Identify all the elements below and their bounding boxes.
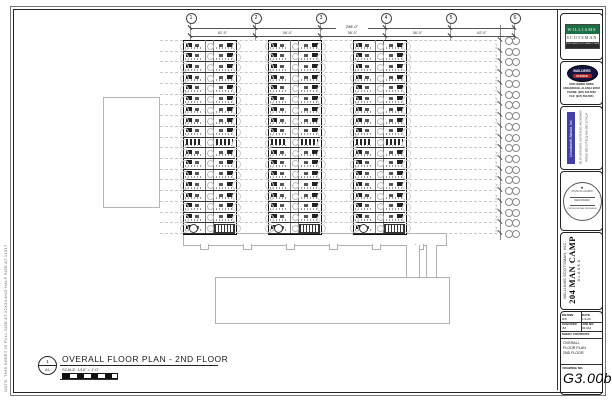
pe-seal-line-1 [570,197,595,198]
door-arc [232,171,241,180]
door-arc [207,118,214,125]
door-arc [180,117,189,126]
room-right [214,84,234,92]
room-right [214,213,234,221]
door-arc [377,171,384,178]
door-arc [402,149,411,158]
door-arc [292,150,299,157]
room-right [214,117,234,125]
corridor-column-pocket [329,244,338,250]
door-arc [317,149,326,158]
door-arc [232,181,241,190]
door-arc [402,74,411,83]
room-right [299,202,319,210]
laundry-equipment [356,139,372,145]
detail-callout: 1 A1 [38,356,57,375]
door-arc [317,160,326,169]
door-arc [207,139,214,146]
room-right [214,63,234,71]
door-arc [402,214,411,223]
door-arc [317,192,326,201]
contents-line-2: FLOOR PLAN [563,346,586,351]
room-right [214,192,234,200]
door-arc [180,53,189,62]
laundry-equipment [386,139,402,145]
stair [214,224,235,233]
room-right [214,42,234,50]
laundry-equipment [271,139,287,145]
door-arc [207,53,214,60]
door-arc [265,106,274,115]
side-grid-bubble [512,187,520,195]
project-company: WILLIAMS SCOTSMAN, INC. [562,234,567,306]
logo-box-builders-choice: BUILDERS CHOICE 5400 HOMER DRIVE ANCHORA… [560,61,603,105]
top-grid-bubble: 3 [316,13,327,24]
room-right [299,52,319,60]
door-arc [292,53,299,60]
room-right [384,74,404,82]
side-grid-bubble [512,230,520,238]
room-right [214,127,234,135]
link-corridor-outline [406,245,420,277]
door-arc [350,96,359,105]
bay-dim-label: 58'-0" [407,31,429,35]
door-arc [207,182,214,189]
door-arc [377,203,384,210]
room-right [214,181,234,189]
room-right [384,52,404,60]
door-arc [292,203,299,210]
door-arc [180,160,189,169]
room-right [384,117,404,125]
door-arc [207,107,214,114]
corridor-column-pocket [372,244,381,250]
room-right [299,159,319,167]
corridor-column-pocket [243,244,252,250]
door-arc [317,117,326,126]
room-right [299,74,319,82]
room-right [299,42,319,50]
door-arc [350,85,359,94]
door-arc [317,42,326,51]
ws-logo-tagline-bar: A WILLIAMS SCOTSMAN COMPANY [566,42,599,48]
side-grid-bubble [512,48,520,56]
door-arc [350,117,359,126]
builders-choice-sub: CHOICE [573,74,592,78]
room-right [384,127,404,135]
side-dim-label: 11'-4" [496,51,499,61]
door-arc [377,225,384,232]
side-dim-label: 11'-4" [496,126,499,136]
door-arc [265,128,274,137]
door-arc [265,224,274,233]
door-arc [317,139,326,148]
floor-plan: 11'-4"11'-4"11'-4"11'-4"11'-4"11'-4"11'-… [0,0,557,401]
room-divider [353,233,405,234]
door-arc [317,181,326,190]
side-dim-label: 11'-4" [496,190,499,200]
top-grid-bubble: 1 [186,13,197,24]
door-arc [292,85,299,92]
door-arc [180,42,189,51]
side-grid-bubble [512,58,520,66]
door-arc [207,193,214,200]
side-dim-label: 11'-4" [496,147,499,157]
top-grid-bubble: 5 [446,13,457,24]
door-arc [402,42,411,51]
door-arc [377,85,384,92]
side-dim-label: 11'-4" [496,40,499,50]
door-arc [377,53,384,60]
door-arc [232,63,241,72]
door-arc [402,192,411,201]
stair [384,224,405,233]
builders-choice-logo: BUILDERS CHOICE [567,65,598,82]
date-value: 1-9-06 [582,317,591,321]
door-arc [402,203,411,212]
room-right [214,159,234,167]
door-arc [350,128,359,137]
plan-scale-note: SCALE: 1/16" = 1'-0" [62,367,99,372]
bay-dim-label: 62'-0" [471,31,493,35]
door-arc [180,192,189,201]
side-dim-label: 11'-4" [496,72,499,82]
door-arc [377,96,384,103]
door-arc [350,106,359,115]
room-right [214,149,234,157]
door-arc [402,117,411,126]
project-location: ALASKA [577,234,581,306]
ws-logo-name-bar: SCOTSMAN [566,34,599,42]
titleblock-divider [557,10,558,390]
side-grid-bubble [512,69,520,77]
door-arc [317,203,326,212]
door-arc [232,42,241,51]
side-grid-bubble [512,209,520,217]
side-grid-bubble [512,219,520,227]
builders-choice-address-4: FAX: (907) 563-5051 [561,95,602,98]
room-right [214,202,234,210]
door-arc [402,106,411,115]
door-arc [232,74,241,83]
door-arc [265,85,274,94]
door-arc [377,182,384,189]
pe-seal-mid-text: REGISTERED [564,199,601,202]
door-arc [377,43,384,50]
door-arc [402,63,411,72]
door-arc [265,171,274,180]
drawing-no-value: G3.00b [563,370,612,386]
room-right [214,74,234,82]
door-arc [402,171,411,180]
door-arc [207,85,214,92]
door-arc [207,96,214,103]
room-right [384,202,404,210]
door-arc [180,214,189,223]
side-grid-bubble [512,101,520,109]
side-grid-bubble [512,123,520,131]
bay-dim-label: 58'-0" [342,31,364,35]
door-arc [377,214,384,221]
side-grid-bubble [512,198,520,206]
door-arc [207,160,214,167]
door-arc [350,160,359,169]
door-arc [317,128,326,137]
door-arc [317,106,326,115]
room-right [384,84,404,92]
pe-seal-line-2 [570,205,595,206]
door-arc [292,64,299,71]
room-right [384,213,404,221]
door-arc [265,53,274,62]
plan-title-underline [60,365,218,366]
door-arc [292,107,299,114]
door-arc [207,171,214,178]
room-right [299,127,319,135]
door-arc [232,214,241,223]
door-arc [180,149,189,158]
door-arc [350,42,359,51]
door-arc [232,128,241,137]
drawn-value: DW [562,317,567,321]
sheet-contents-text: OVERALL FLOOR PLAN 2ND FLOOR [563,341,586,355]
room-divider [183,233,235,234]
callout-divider [39,365,56,366]
door-arc [232,96,241,105]
project-name: 204 MAN CAMP [567,234,577,306]
door-arc [350,181,359,190]
door-arc [265,42,274,51]
room-right [214,52,234,60]
door-arc [232,139,241,148]
door-arc [377,139,384,146]
side-dim-label: 11'-4" [496,169,499,179]
door-arc [377,75,384,82]
side-dim-label: 11'-4" [496,115,499,125]
side-dim-label: 11'-4" [496,179,499,189]
bay-dim-label: 58'-0" [277,31,299,35]
woodworth-address-1: 301 W. NORTHERN LIGHTS BLVD. ANCHORAGE, … [579,111,584,165]
room-right [384,42,404,50]
door-arc [377,160,384,167]
adjacent-building-outline [103,97,160,208]
stair [299,224,320,233]
sheet-contents-label: SHEET CONTENTS [561,332,602,339]
top-grid-bubble: 4 [381,13,392,24]
door-arc [232,53,241,62]
door-arc [265,117,274,126]
room-right [299,84,319,92]
stamp-box: ★ STATE OF ALASKA REGISTERED PROFESSIONA… [560,171,603,231]
door-arc [350,149,359,158]
side-grid-bubble [512,112,520,120]
door-arc [350,53,359,62]
room-right [214,95,234,103]
door-arc [265,181,274,190]
door-arc [265,203,274,212]
laundry-equipment [216,139,232,145]
door-arc [180,106,189,115]
side-grid-bubble [512,155,520,163]
door-arc [265,149,274,158]
door-arc [402,139,411,148]
door-arc [350,171,359,180]
door-arc [317,85,326,94]
pe-seal: ★ STATE OF ALASKA REGISTERED PROFESSIONA… [563,182,602,221]
room-right [299,192,319,200]
door-arc [232,203,241,212]
door-arc [350,224,359,233]
door-arc [292,225,299,232]
door-arc [207,150,214,157]
door-arc [292,160,299,167]
door-arc [292,75,299,82]
door-arc [265,214,274,223]
builders-choice-address-3: PHONE: (907) 563-5050 [561,91,602,94]
ws-logo-green-bar: WILLIAMS [566,25,599,34]
room-right [384,170,404,178]
door-arc [350,214,359,223]
door-arc [265,74,274,83]
link-corridor-outline [426,245,437,277]
door-arc [292,193,299,200]
door-arc [377,118,384,125]
room-right [299,63,319,71]
side-dim-label: 11'-4" [496,222,499,232]
door-arc [317,63,326,72]
room-right [299,213,319,221]
door-arc [317,171,326,180]
door-arc [180,128,189,137]
side-grid-bubble [512,144,520,152]
builders-choice-name: BUILDERS [568,69,597,73]
side-dim-label: 11'-4" [496,136,499,146]
graphic-scale-baseline [60,379,118,380]
corridor-column-pocket [286,244,295,250]
side-grid-bubble [512,80,520,88]
room-right [384,159,404,167]
builders-choice-address-2: ANCHORAGE, ALASKA 99518 [561,87,602,90]
door-arc [180,224,189,233]
room-right [299,170,319,178]
door-arc [265,192,274,201]
job-value: 06-014 [582,326,591,330]
lower-wing-outline [215,277,450,324]
door-arc [232,192,241,201]
side-dim-label: 11'-4" [496,83,499,93]
door-arc [377,64,384,71]
door-arc [180,181,189,190]
door-arc [292,182,299,189]
drawing-info-box: DRAWN DW DATE 1-9-06 CHECKED JM JOB NO. … [560,311,603,395]
side-dim-label: 11'-4" [496,158,499,168]
top-dim-line-bays [190,36,514,37]
williams-scotsman-logo: WILLIAMS SCOTSMAN A WILLIAMS SCOTSMAN CO… [565,24,600,49]
side-grid-bubble [512,91,520,99]
door-arc [402,85,411,94]
side-grid-bubble [512,176,520,184]
door-arc [350,63,359,72]
door-arc [265,96,274,105]
room-right [214,106,234,114]
door-arc [232,85,241,94]
contents-line-3: 2ND FLOOR [563,351,586,356]
door-arc [350,192,359,201]
door-arc [292,139,299,146]
room-right [384,106,404,114]
woodworth-banner-text: Woodworth Alaska, Inc. [567,112,575,164]
room-right [384,149,404,157]
door-arc [232,117,241,126]
top-grid-bubble: 2 [251,13,262,24]
builders-choice-address-1: 5400 HOMER DRIVE [561,83,602,86]
door-arc [292,96,299,103]
room-right [384,63,404,71]
door-arc [317,53,326,62]
door-arc [232,106,241,115]
door-arc [207,203,214,210]
door-arc [180,96,189,105]
bay-dim-label: 62'-0" [212,31,234,35]
door-arc [317,96,326,105]
door-arc [377,193,384,200]
door-arc [402,128,411,137]
logo-box-woodworth: Woodworth Alaska, Inc. 301 W. NORTHERN L… [560,106,603,170]
logo-box-williams-scotsman: WILLIAMS SCOTSMAN A WILLIAMS SCOTSMAN CO… [560,13,603,60]
room-right [384,192,404,200]
door-arc [265,160,274,169]
room-right [299,117,319,125]
room-right [384,95,404,103]
callout-number: 1 [39,359,56,364]
laundry-equipment [186,139,202,145]
door-arc [292,43,299,50]
door-arc [180,85,189,94]
door-arc [350,203,359,212]
side-grid-bubble [512,166,520,174]
door-arc [402,160,411,169]
door-arc [180,171,189,180]
door-arc [207,64,214,71]
door-arc [232,160,241,169]
room-right [214,170,234,178]
door-arc [377,128,384,135]
door-arc [402,96,411,105]
door-arc [292,214,299,221]
door-arc [265,63,274,72]
door-arc [317,214,326,223]
door-arc [377,150,384,157]
pe-seal-top-text: STATE OF ALASKA [564,190,601,193]
side-dim-label: 11'-4" [496,104,499,114]
side-dim-label: 11'-4" [496,211,499,221]
room-right [299,106,319,114]
door-arc [180,74,189,83]
door-arc [292,128,299,135]
side-dim-line [500,25,501,240]
side-dim-label: 11'-4" [496,201,499,211]
side-dim-label: 11'-4" [496,61,499,71]
door-arc [207,225,214,232]
room-right [299,149,319,157]
door-arc [207,43,214,50]
door-arc [402,53,411,62]
door-arc [350,74,359,83]
door-arc [207,214,214,221]
laundry-equipment [301,139,317,145]
door-arc [292,171,299,178]
door-arc [207,128,214,135]
